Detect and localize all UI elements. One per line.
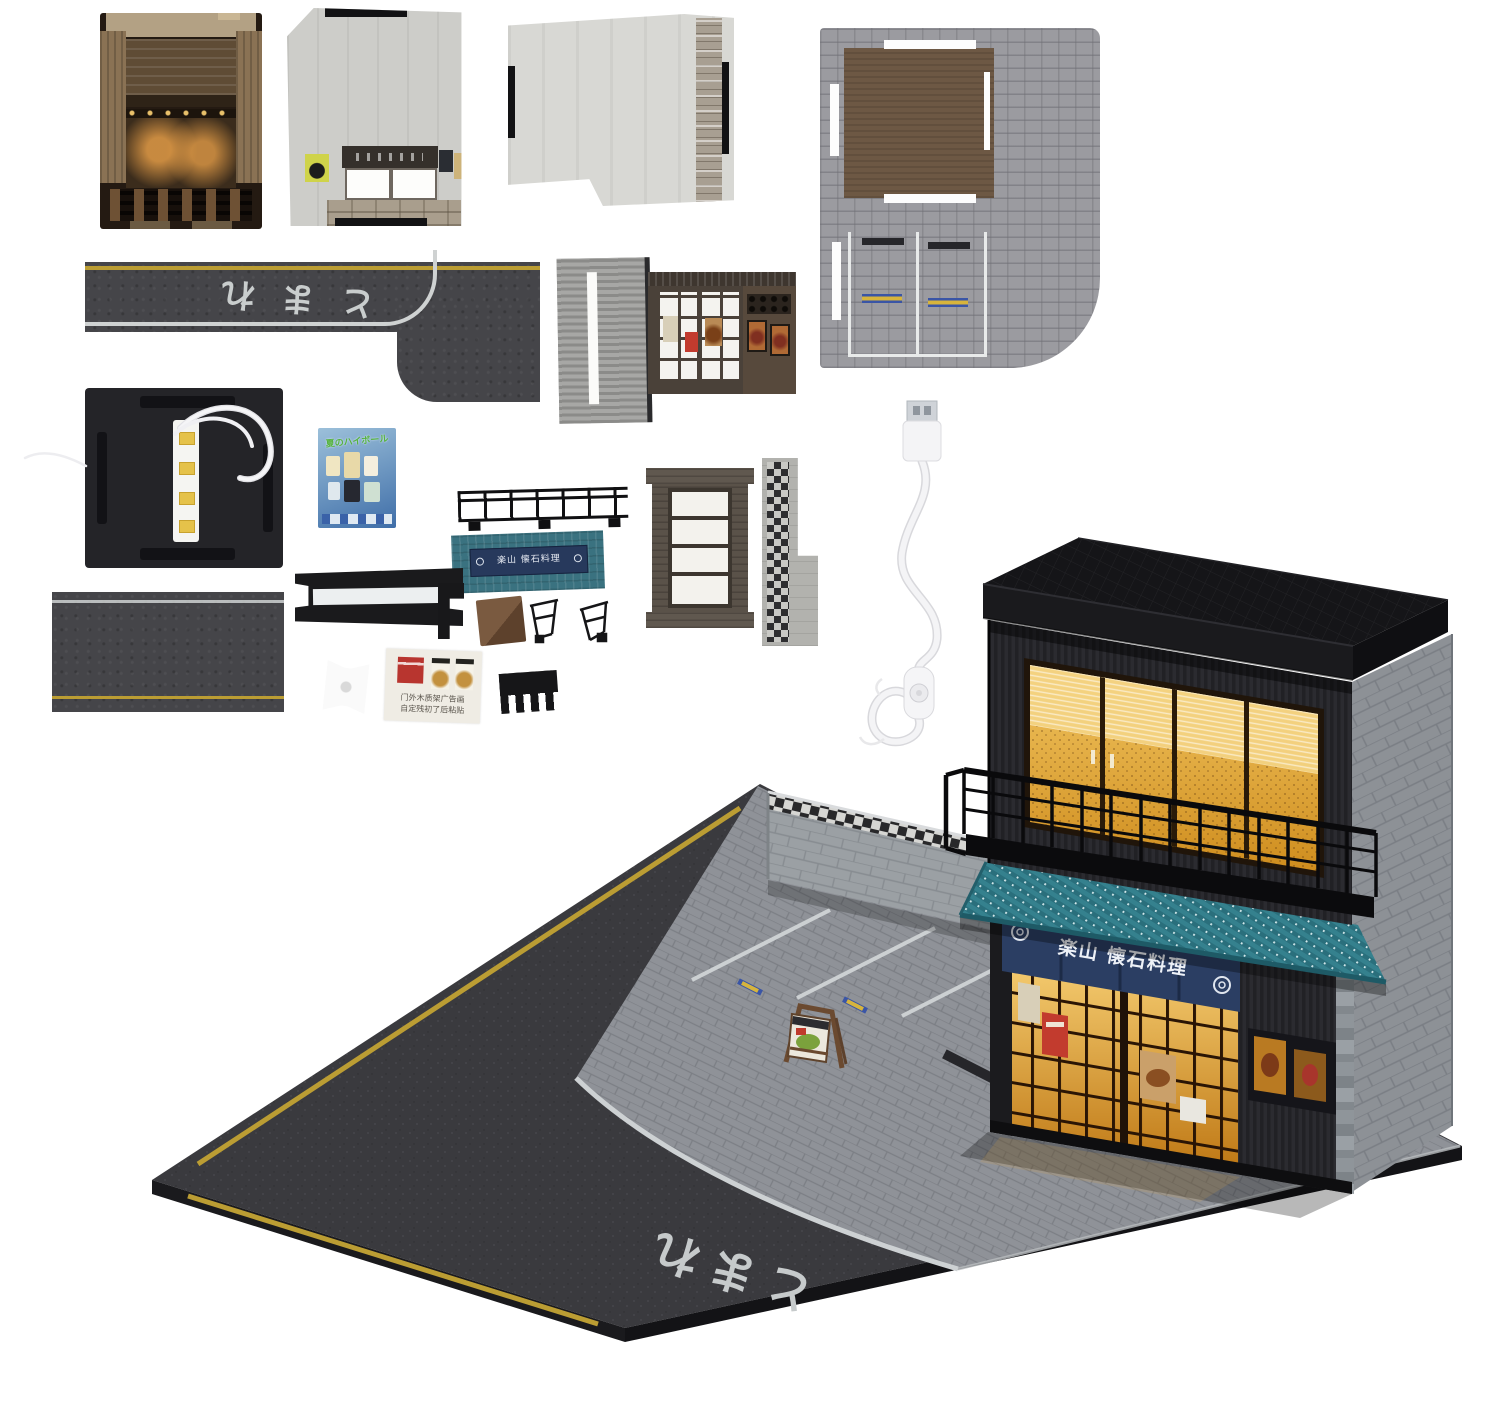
printed-window-pane	[393, 170, 435, 198]
parking-line	[848, 354, 987, 357]
road-surface-extension	[397, 302, 540, 402]
road-piece-corner: とまれ	[85, 262, 540, 402]
assembled-diorama: とまれ	[140, 512, 1470, 1354]
interior-lights-row	[126, 109, 236, 118]
interior-print-card	[100, 13, 262, 229]
wall-piece-storefront-print	[287, 8, 465, 226]
interior-tables	[110, 189, 252, 221]
small-window-poster	[772, 326, 788, 354]
interior-rail	[126, 95, 236, 107]
storefront-lattice-piece	[648, 272, 796, 394]
storefront-right-section	[743, 286, 796, 394]
base-slot	[832, 242, 841, 320]
wall-tab	[335, 218, 427, 226]
base-slot	[830, 84, 839, 156]
vent-grid	[747, 294, 791, 314]
card-tab	[218, 13, 240, 20]
storefront-poster-red	[1042, 1012, 1068, 1058]
interior-mezzanine	[126, 39, 236, 95]
door-poster	[685, 332, 698, 352]
small-window-poster	[749, 322, 765, 350]
wall-tab	[508, 66, 515, 138]
parking-line	[916, 232, 919, 356]
window-top-flange	[646, 468, 754, 484]
corner-quoins	[1336, 967, 1354, 1194]
corrugated-wall-strip	[557, 257, 653, 424]
lattice-door-window	[657, 292, 739, 382]
poster-drink	[328, 482, 340, 500]
printed-window-pane	[347, 170, 389, 198]
printed-window-band	[345, 168, 437, 200]
interior-pillar-left	[100, 31, 126, 183]
door-poster	[663, 316, 678, 342]
parking-line	[984, 232, 987, 356]
printed-poster-dark	[439, 150, 453, 172]
printed-poster-yellow	[305, 154, 329, 182]
interior-pillar-right	[236, 31, 262, 183]
base-wood-area	[844, 48, 994, 198]
base-slot	[984, 72, 990, 150]
poster-drink	[364, 482, 380, 502]
small-window	[770, 324, 790, 356]
poster-dark-panel	[344, 480, 360, 502]
parking-line	[848, 232, 851, 356]
parking-stop-marker	[862, 294, 902, 303]
printed-shop-sign	[342, 146, 438, 168]
base-parking-area	[848, 232, 994, 360]
poster-drink	[364, 456, 378, 476]
base-plate-piece	[820, 28, 1100, 368]
storefront-poster	[1018, 982, 1040, 1024]
parking-slot	[862, 238, 904, 245]
storefront-menu	[1180, 1096, 1206, 1124]
wall-tab	[721, 62, 729, 154]
door-poster	[705, 318, 722, 346]
izakaya-building: 楽山 懐石料理	[946, 538, 1452, 1194]
card-tab	[130, 221, 170, 229]
wall-piece-plain	[508, 14, 734, 206]
poster-drink	[344, 452, 360, 478]
wall-tab	[325, 8, 407, 17]
poster-drink	[326, 456, 340, 476]
printed-stone-column	[696, 18, 722, 202]
parking-stop-marker	[928, 298, 968, 307]
door-center-rail	[1120, 989, 1128, 1146]
usb-a-connector	[903, 401, 941, 461]
product-photo-miniature-diorama-kit: とまれ	[0, 0, 1500, 1402]
poster-sheet-title: 夏のハイボール	[320, 431, 395, 450]
storefront-roof-ribs	[648, 272, 796, 286]
small-window	[747, 320, 767, 352]
base-slot	[884, 194, 976, 203]
card-tab	[192, 221, 232, 229]
base-slot	[884, 40, 976, 49]
strip-slot	[587, 272, 599, 404]
printed-poster-tan	[454, 153, 465, 179]
interior-stage	[126, 118, 236, 188]
parking-slot	[928, 242, 970, 249]
